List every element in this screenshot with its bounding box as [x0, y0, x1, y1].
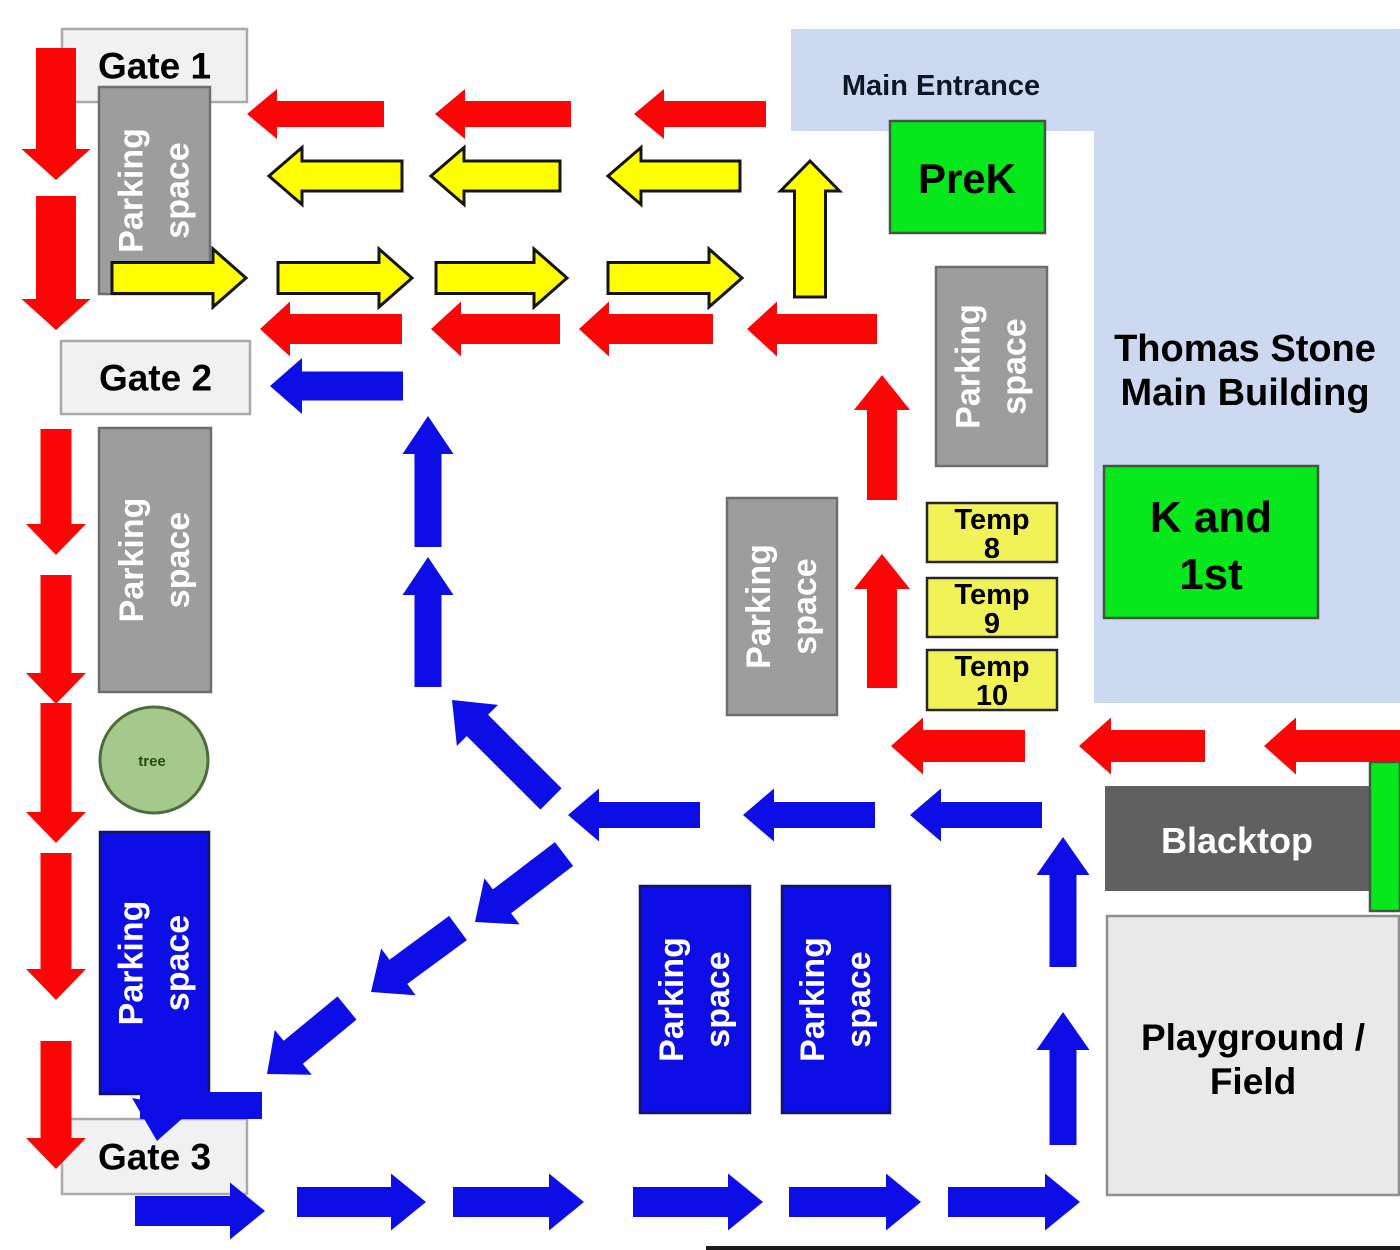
svg-text:K and: K and — [1150, 493, 1272, 542]
svg-text:Parking: Parking — [113, 498, 151, 623]
svg-text:Temp: Temp — [954, 504, 1029, 536]
svg-text:space: space — [996, 318, 1034, 414]
svg-text:Playground /: Playground / — [1141, 1017, 1365, 1058]
svg-text:Gate 3: Gate 3 — [98, 1137, 211, 1178]
svg-text:Parking: Parking — [113, 128, 151, 253]
svg-text:tree: tree — [138, 753, 166, 770]
svg-text:space: space — [159, 915, 197, 1011]
svg-text:1st: 1st — [1179, 550, 1243, 599]
svg-text:Parking: Parking — [113, 901, 151, 1026]
svg-text:Temp: Temp — [954, 651, 1029, 683]
svg-text:Parking: Parking — [794, 937, 832, 1062]
svg-text:Parking: Parking — [740, 544, 778, 669]
svg-text:space: space — [840, 951, 878, 1047]
svg-text:Parking: Parking — [653, 937, 691, 1062]
svg-text:8: 8 — [984, 533, 1000, 565]
svg-text:space: space — [159, 142, 197, 238]
svg-text:Main Building: Main Building — [1120, 372, 1369, 414]
svg-text:Thomas Stone: Thomas Stone — [1114, 328, 1376, 370]
svg-text:Gate 2: Gate 2 — [99, 358, 212, 399]
svg-text:space: space — [786, 558, 824, 654]
svg-text:Temp: Temp — [954, 579, 1029, 611]
svg-text:9: 9 — [984, 608, 1000, 640]
svg-text:space: space — [159, 512, 197, 608]
svg-text:space: space — [699, 951, 737, 1047]
svg-text:Field: Field — [1210, 1061, 1296, 1102]
svg-text:Blacktop: Blacktop — [1161, 820, 1313, 861]
svg-text:Parking: Parking — [950, 304, 988, 429]
svg-text:Main Entrance: Main Entrance — [842, 70, 1040, 102]
svg-text:PreK: PreK — [918, 155, 1016, 202]
svg-text:Gate 1: Gate 1 — [98, 46, 211, 87]
svg-text:10: 10 — [976, 680, 1008, 712]
